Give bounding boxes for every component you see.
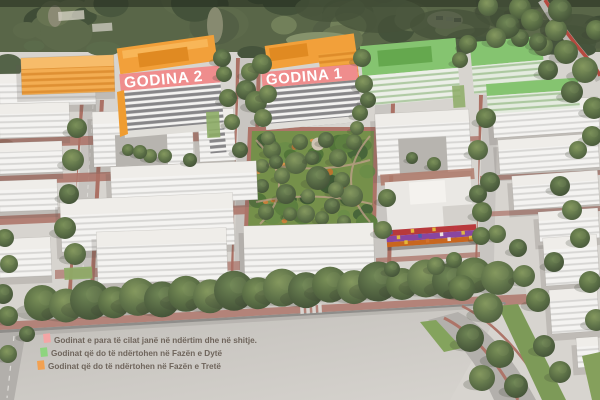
svg-text:Godinat që do të ndërtohen në: Godinat që do të ndërtohen në Fazën e Dy… bbox=[51, 349, 222, 358]
svg-text:Godinat e para të cilat janë n: Godinat e para të cilat janë në ndërtim … bbox=[54, 336, 257, 345]
svg-text:Godinat që do të ndërtohen në: Godinat që do të ndërtohen në Fazën e Tr… bbox=[48, 362, 221, 371]
